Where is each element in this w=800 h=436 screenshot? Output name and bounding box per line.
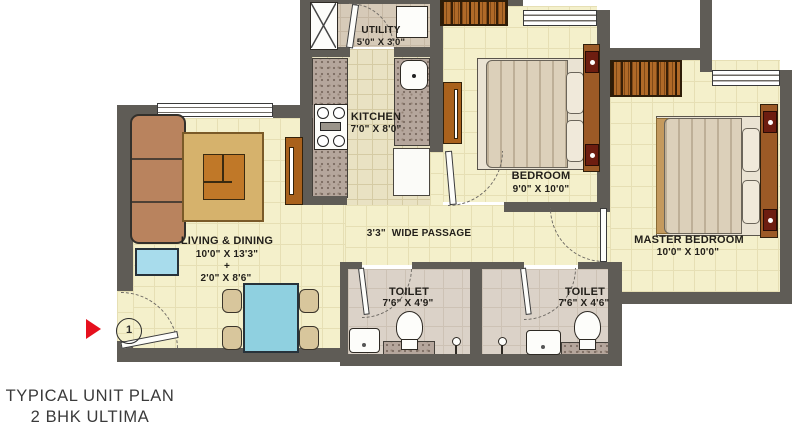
dining-chair [222,289,242,313]
master-bedroom-dim: 10'0" X 10'0" [657,248,719,258]
wall [608,48,712,60]
side-table [135,248,179,276]
plan-title-line1: TYPICAL UNIT PLAN [4,386,176,407]
bed-pillow [566,120,584,162]
refrigerator [393,148,430,196]
bed-headboard [583,44,600,172]
hob [314,104,348,150]
headboard-knob-icon [585,144,599,166]
bedroom-dim: 9'0" X 10'0" [513,185,570,195]
headboard-knob-icon [763,111,777,133]
floor-plan: UTILITY 5'0" X 3'0" KITCHEN 7'0" X 8'0" … [0,0,800,436]
headboard-knob-icon [585,51,599,73]
toilet-2-dim: 7'6" X 4'6" [559,299,610,309]
rug [182,132,264,222]
wall [117,348,347,362]
wall [470,262,482,364]
basin-drain-icon [362,343,366,347]
master-wardrobe [610,60,682,97]
bed-pillow [566,72,584,114]
master-bedroom-label: MASTER BEDROOM [634,235,744,246]
toilet-2-wc [574,311,601,342]
wall [300,196,347,205]
sofa [130,114,186,244]
bedroom-window [523,10,597,26]
wall [780,70,792,304]
master-bed-pillow [742,128,760,172]
bedroom-wardrobe [440,0,508,26]
wall [610,292,792,304]
plan-title: TYPICAL UNIT PLAN 2 BHK ULTIMA [4,386,176,428]
wall [608,262,622,364]
bedroom-cabinet [443,82,462,144]
sink-drain-icon [412,74,416,78]
bedroom-door-floor [430,152,443,205]
cabinet-door [454,89,458,139]
headboard-knob-icon [763,209,777,231]
living-dining-label: LIVING & DINING [181,236,273,247]
dining-table [243,283,299,353]
utility-dim: 5'0" X 3'0" [357,38,405,48]
toilet-1-shower-stem [455,345,457,354]
bedroom-label: BEDROOM [512,171,571,182]
living-dining-plus: + [224,262,230,272]
sofa-seam [132,201,184,203]
basin-drain-icon [541,345,545,349]
living-dining-dim1: 10'0" X 13'3" [196,250,258,260]
toilet-2-wc-base [579,339,596,350]
dining-chair [222,326,242,350]
toilet-1-wc [396,311,423,342]
entrance-arrow-icon [86,319,101,339]
toilet-1-dim: 7'6" X 4'9" [383,299,434,309]
shaft-cross-icon [311,3,336,48]
toilet-2-washbasin [526,330,561,355]
toilet-1-label: TOILET [389,287,429,298]
burner-icon [317,107,329,119]
wall [700,0,712,72]
washing-machine [396,6,428,38]
wall [340,262,348,364]
wall [578,262,610,269]
master-bedroom-door-leaf [600,208,607,262]
kitchen-sink [400,60,428,90]
tv-unit [285,137,303,205]
kitchen-dim: 7'0" X 8'0" [351,125,402,135]
wall [482,262,524,269]
hob-grill [320,122,341,131]
toilet-2-shower-stem [501,345,503,354]
table-line [222,155,224,183]
master-bed-headboard [760,104,778,238]
burner-icon [333,135,345,147]
toilet-1-washbasin [349,328,380,353]
living-dining-dim2: 2'0" X 8'6" [201,274,252,284]
toilet-2-label: TOILET [565,287,605,298]
burner-icon [317,135,329,147]
toilet-1-wc-base [401,339,418,350]
utility-label: UTILITY [361,26,400,36]
kitchen-label: KITCHEN [351,112,401,123]
master-bedroom-window [712,70,780,86]
burner-icon [333,107,345,119]
wall [340,354,622,366]
sofa-seam [132,158,184,160]
master-bed-duvet [664,118,742,234]
coffee-table [203,154,245,200]
plan-title-line2: 2 BHK ULTIMA [4,407,176,428]
duct-shaft [310,2,338,50]
dining-chair [299,326,319,350]
master-bed-pillow [742,180,760,224]
dining-chair [299,289,319,313]
tv-screen [289,147,294,195]
entrance-number-marker: 1 [116,318,142,344]
passage-label: 3'3" WIDE PASSAGE [367,229,471,239]
table-line [204,181,232,183]
